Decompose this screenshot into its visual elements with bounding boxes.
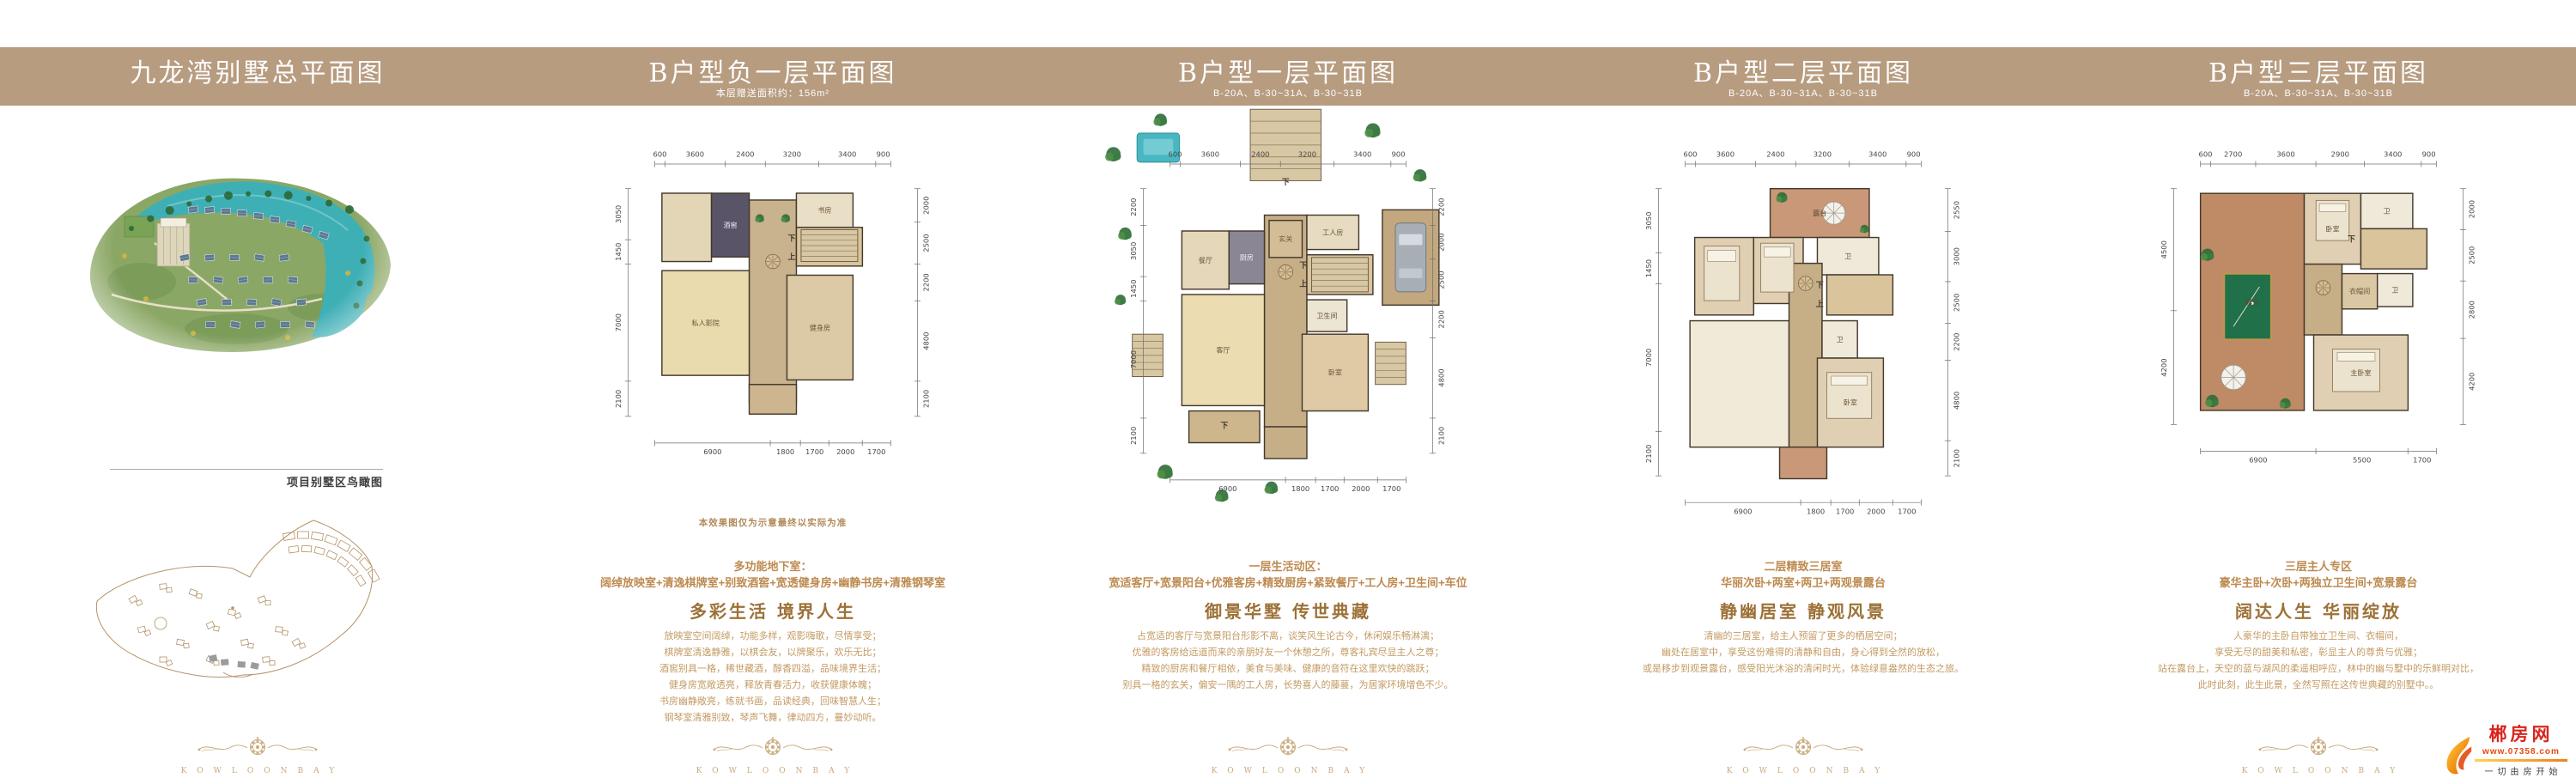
svg-text:3200: 3200 [1298,150,1316,159]
text-line: 享受无尽的甜美和私密，彰显主人的尊贵与优雅； [2087,645,2550,661]
svg-text:1450: 1450 [1644,259,1653,277]
svg-text:5500: 5500 [2353,456,2371,465]
logo-ornament-icon [708,735,837,761]
svg-text:2500: 2500 [922,234,931,252]
svg-text:1700: 1700 [1836,507,1854,515]
svg-text:卫: 卫 [2391,286,2398,295]
page-subtitle: B-20A、B-30~31A、B-30~31B [2061,86,2576,100]
svg-text:6900: 6900 [703,447,721,456]
svg-text:3400: 3400 [838,150,856,159]
svg-text:2400: 2400 [736,150,754,159]
svg-text:下: 下 [1299,261,1307,270]
svg-text:1800: 1800 [776,447,794,456]
svg-text:2400: 2400 [1251,150,1269,159]
page-subtitle: 本层赠送面积约：156m² [515,86,1030,100]
page-title: B户型负一层平面图 [515,52,1030,89]
svg-text:下: 下 [1282,178,1290,187]
svg-text:3200: 3200 [1814,150,1832,159]
floor-plan-basement: 下上酒窖书房私人影院健身房600360024003200340090069001… [588,101,957,532]
svg-text:3050: 3050 [1129,242,1138,260]
svg-text:卫: 卫 [2384,207,2391,216]
svg-text:卧室: 卧室 [2325,224,2339,233]
floor-plan-third-floor: 下露台卧室卫衣帽间卫主卧室600270036002900340090069005… [2134,101,2503,532]
text-line: 或是移步到观景露台，感受阳光沐浴的清闲时光，体验绿意盎然的生态之旅。 [1571,661,2035,678]
logo-text: KOWLOONBAY [1030,767,1546,775]
svg-text:上: 上 [1816,299,1824,309]
svg-text:7000: 7000 [1644,349,1653,367]
svg-text:2000: 2000 [2468,200,2476,218]
svg-text:书房: 书房 [817,206,831,215]
text-line: 人豪华的主卧自带独立卫生间、衣帽间， [2087,629,2550,645]
svg-text:餐厅: 餐厅 [1199,256,1212,264]
svg-text:下: 下 [1220,422,1228,431]
svg-text:2100: 2100 [922,390,931,408]
svg-text:2900: 2900 [2331,150,2349,159]
floor-plan-second-floor: 下上露台卫卫卧室60036002400320034009006900180017… [1619,101,1988,532]
text-line: 酒窖别具一格，稀世藏酒，醇香四溢，品味境界生活； [541,661,1005,678]
svg-text:900: 900 [1392,150,1406,159]
feature-text-block: 二层精致三居室 华丽次卧+两室+两卫+两观景露台 静幽居室 静观风景 清幽的三居… [1571,558,2035,678]
svg-text:卫: 卫 [1837,335,1844,343]
svg-text:3050: 3050 [1644,212,1653,230]
svg-text:下: 下 [2348,235,2355,245]
svg-text:4800: 4800 [922,331,931,349]
text-line: 站在露台上，天空的蓝与湖风的柔遥相呼应，林中的幽与墅中的乐鲜明对比， [2087,661,2550,678]
svg-text:客厅: 客厅 [1216,346,1230,355]
svg-text:工人房: 工人房 [1322,228,1343,236]
disclaimer-note: 本效果图仅为示意最终以实际为准 [515,516,1030,529]
body-text: 清幽的三居室，给主人预留了更多的栖居空间；幽处在居室中，享受这份难得的清静和自由… [1571,629,2035,678]
svg-text:露台: 露台 [2245,297,2259,306]
panel-master-plan: 九龙湾别墅总平面图 项目别墅区鸟瞰图 KOWLOONBAY [0,0,515,784]
svg-text:2100: 2100 [1644,445,1653,463]
feature-list: 宽适客厅+宽景阳台+优雅客房+精致厨房+紧致餐厅+工人房+卫生间+车位 [1056,574,1520,591]
svg-text:2000: 2000 [922,197,931,215]
svg-text:卫生间: 卫生间 [1316,311,1337,319]
body-text: 人豪华的主卧自带独立卫生间、衣帽间，享受无尽的甜美和私密，彰显主人的尊贵与优雅；… [2087,629,2550,694]
watermark-brand: 郴房网 [2489,720,2554,746]
svg-text:2200: 2200 [922,273,931,291]
body-text: 占宽适的客厅与宽景阳台形影不离，谈笑风生论古今，休闲娱乐畅淋漓；优雅的客房给远道… [1056,629,1520,694]
watermark: 郴房网 www.07358.com 一切由房开始 [2442,720,2567,777]
kowloon-bay-logo: KOWLOONBAY [1030,735,1546,775]
page-title: B户型一层平面图 [1030,52,1546,89]
svg-text:卫: 卫 [1844,252,1851,260]
svg-text:2700: 2700 [2224,150,2242,159]
page-title: B户型二层平面图 [1546,52,2061,89]
svg-text:2000: 2000 [836,447,854,456]
svg-text:3600: 3600 [1201,150,1219,159]
panel-first-floor-plan: B户型一层平面图 B-20A、B-30~31A、B-30~31B 下下上下餐厅厨… [1030,0,1546,784]
text-line: 优雅的客房给远道而来的亲朋好友一个休憩之所，尊客礼宾尽显主人之尊； [1056,645,1520,661]
svg-text:6900: 6900 [1218,484,1236,493]
svg-text:7000: 7000 [614,313,623,331]
svg-text:1700: 1700 [1321,484,1339,493]
watermark-text-column: 郴房网 www.07358.com 一切由房开始 [2475,720,2567,777]
svg-text:3000: 3000 [1953,247,1961,265]
svg-text:私人影院: 私人影院 [691,319,719,327]
svg-text:6900: 6900 [2249,456,2267,465]
svg-text:2100: 2100 [1437,427,1446,445]
svg-text:厨房: 厨房 [1240,253,1254,262]
svg-text:7000: 7000 [1129,350,1138,368]
svg-text:上: 上 [1299,279,1307,289]
logo-text: KOWLOONBAY [0,767,515,775]
svg-text:1700: 1700 [2413,456,2431,465]
text-line: 别具一格的玄关，偏安一隅的工人房，长势喜人的藤蔓，为居家环境增色不少。 [1056,678,1520,694]
feature-text-block: 多功能地下室： 阔绰放映室+清逸棋牌室+别致酒窖+宽透健身房+幽静书房+清雅钢琴… [541,558,1005,726]
slogan: 静幽居室 静观风景 [1571,598,2035,623]
feature-list: 阔绰放映室+清逸棋牌室+别致酒窖+宽透健身房+幽静书房+清雅钢琴室 [541,574,1005,591]
svg-text:2400: 2400 [1766,150,1784,159]
panel-second-floor-plan: B户型二层平面图 B-20A、B-30~31A、B-30~31B 下上露台卫卫卧… [1546,0,2061,784]
svg-text:1800: 1800 [1807,507,1825,515]
feature-list: 豪华主卧+次卧+两独立卫生间+宽景露台 [2087,574,2550,591]
kowloon-bay-logo: KOWLOONBAY [515,735,1030,775]
page-subtitle: B-20A、B-30~31A、B-30~31B [1030,86,1546,100]
kowloon-bay-logo: KOWLOONBAY [1546,735,2061,775]
panel-basement-plan: B户型负一层平面图 本层赠送面积约：156m² 下上酒窖书房私人影院健身房600… [515,0,1030,784]
text-line: 放映室空间阔绰，功能多样，观影嗨歌，尽情享受； [541,629,1005,645]
brochure-canvas: 九龙湾别墅总平面图 项目别墅区鸟瞰图 KOWLOONBAY B户型负一层平面图 … [0,0,2576,784]
caption-divider [110,469,383,470]
watermark-gradient-bar [2475,759,2567,762]
logo-ornament-icon [2254,735,2383,761]
svg-text:600: 600 [653,150,666,159]
svg-text:衣帽间: 衣帽间 [2349,287,2370,295]
slogan: 御景华墅 传世典藏 [1056,598,1520,623]
svg-text:4200: 4200 [2468,373,2476,391]
svg-text:2200: 2200 [1437,310,1446,328]
svg-text:2100: 2100 [1129,427,1138,445]
text-line: 精致的厨房和餐厅相依，美食与美味、健康的音符在这里欢快的跳跃； [1056,661,1520,678]
aerial-caption: 项目别墅区鸟瞰图 [110,473,383,489]
panel-third-floor-plan: B户型三层平面图 B-20A、B-30~31A、B-30~31B 下露台卧室卫衣… [2061,0,2576,784]
svg-text:1450: 1450 [1129,280,1138,298]
watermark-url: www.07358.com [2482,747,2560,757]
text-line: 幽处在居室中，享受这份难得的清静和自由，身心得到全然的放松， [1571,645,2035,661]
svg-text:4500: 4500 [2160,240,2168,258]
svg-text:900: 900 [877,150,890,159]
svg-text:600: 600 [2198,150,2212,159]
svg-text:2200: 2200 [1953,332,1961,350]
text-line: 棋牌室清逸静雅，以棋会友，以牌聚乐，欢乐无比； [541,645,1005,661]
svg-text:900: 900 [2422,150,2436,159]
text-line: 清幽的三居室，给主人预留了更多的栖居空间； [1571,629,2035,645]
text-line: 书房幽静敞亮，练就书画，品读经典，回味智慧人生； [541,694,1005,710]
svg-text:1700: 1700 [1898,507,1916,515]
svg-text:下: 下 [1816,281,1824,290]
feature-list: 华丽次卧+两室+两卫+两观景露台 [1571,574,2035,591]
svg-text:1800: 1800 [1291,484,1309,493]
svg-text:600: 600 [1168,150,1182,159]
feature-heading: 一层生活动区： [1056,558,1520,574]
svg-text:4200: 4200 [2160,358,2168,376]
svg-text:4800: 4800 [1953,392,1961,410]
svg-text:上: 上 [788,252,796,262]
svg-text:2800: 2800 [2468,301,2476,319]
svg-text:主卧室: 主卧室 [2350,368,2371,377]
page-title: B户型三层平面图 [2061,52,2576,89]
logo-text: KOWLOONBAY [515,767,1030,775]
page-title: 九龙湾别墅总平面图 [0,52,515,89]
svg-text:2500: 2500 [1437,270,1446,289]
svg-text:露台: 露台 [1813,209,1826,217]
slogan: 阔达人生 华丽绽放 [2087,598,2550,623]
svg-text:4800: 4800 [1437,368,1446,386]
logo-ornament-icon [193,735,322,761]
svg-text:600: 600 [1683,150,1697,159]
svg-text:3400: 3400 [1868,150,1886,159]
feature-text-block: 三层主人专区 豪华主卧+次卧+两独立卫生间+宽景露台 阔达人生 华丽绽放 人豪华… [2087,558,2550,694]
watermark-tagline: 一切由房开始 [2481,764,2562,777]
svg-text:卧室: 卧室 [1328,368,1342,377]
feature-heading: 二层精致三居室 [1571,558,2035,574]
svg-text:2200: 2200 [1129,198,1138,216]
feature-heading: 三层主人专区 [2087,558,2550,574]
svg-text:1700: 1700 [805,447,823,456]
feature-heading: 多功能地下室： [541,558,1005,574]
logo-text: KOWLOONBAY [1546,767,2061,775]
floor-plan-first-floor: 下下上下餐厅厨房玄关工人房客厅卫生间卧室60036002400320034009… [1103,101,1473,532]
svg-text:2500: 2500 [2468,246,2476,264]
svg-text:卧室: 卧室 [1844,398,1857,407]
svg-text:3600: 3600 [1716,150,1735,159]
logo-ornament-icon [1224,735,1352,761]
svg-text:3200: 3200 [783,150,801,159]
svg-text:3400: 3400 [2384,150,2402,159]
svg-text:玄关: 玄关 [1279,234,1292,243]
svg-text:健身房: 健身房 [810,323,830,331]
aerial-rendering-image [64,127,412,376]
slogan: 多彩生活 境界人生 [541,598,1005,623]
svg-text:下: 下 [788,234,796,244]
svg-text:2200: 2200 [1437,198,1446,216]
svg-text:2100: 2100 [1953,449,1961,467]
swoosh-icon [2442,734,2475,777]
kowloon-bay-logo: KOWLOONBAY [0,735,515,775]
svg-text:1700: 1700 [867,447,885,456]
svg-text:2000: 2000 [1437,233,1446,251]
svg-text:2500: 2500 [1953,294,1961,312]
svg-text:1450: 1450 [614,243,623,261]
svg-text:6900: 6900 [1734,507,1752,515]
svg-text:2550: 2550 [1953,201,1961,219]
text-line: 占宽适的客厅与宽景阳台形影不离，谈笑风生论古今，休闲娱乐畅淋漓； [1056,629,1520,645]
feature-text-block: 一层生活动区： 宽适客厅+宽景阳台+优雅客房+精致厨房+紧致餐厅+工人房+卫生间… [1056,558,1520,694]
svg-text:酒窖: 酒窖 [723,221,737,229]
site-plan-drawing [82,496,399,702]
svg-text:3600: 3600 [686,150,704,159]
svg-text:900: 900 [1907,150,1921,159]
svg-text:2000: 2000 [1352,484,1370,493]
text-line: 此时此刻，此生此景，全然写照在这传世典藏的别墅中。。 [2087,678,2550,694]
svg-text:3600: 3600 [2276,150,2294,159]
text-line: 健身房宽敞透亮，释放青春活力，收获健康体魄； [541,678,1005,694]
svg-text:3050: 3050 [614,205,623,223]
logo-ornament-icon [1739,735,1868,761]
body-text: 放映室空间阔绰，功能多样，观影嗨歌，尽情享受；棋牌室清逸静雅，以棋会友，以牌聚乐… [541,629,1005,726]
text-line: 钢琴室清雅别致，琴声飞舞，律动四方，曼妙动听。 [541,710,1005,726]
svg-text:3400: 3400 [1353,150,1371,159]
svg-text:2100: 2100 [614,390,623,408]
svg-text:1700: 1700 [1382,484,1400,493]
svg-text:2000: 2000 [1867,507,1885,515]
page-subtitle: B-20A、B-30~31A、B-30~31B [1546,86,2061,100]
